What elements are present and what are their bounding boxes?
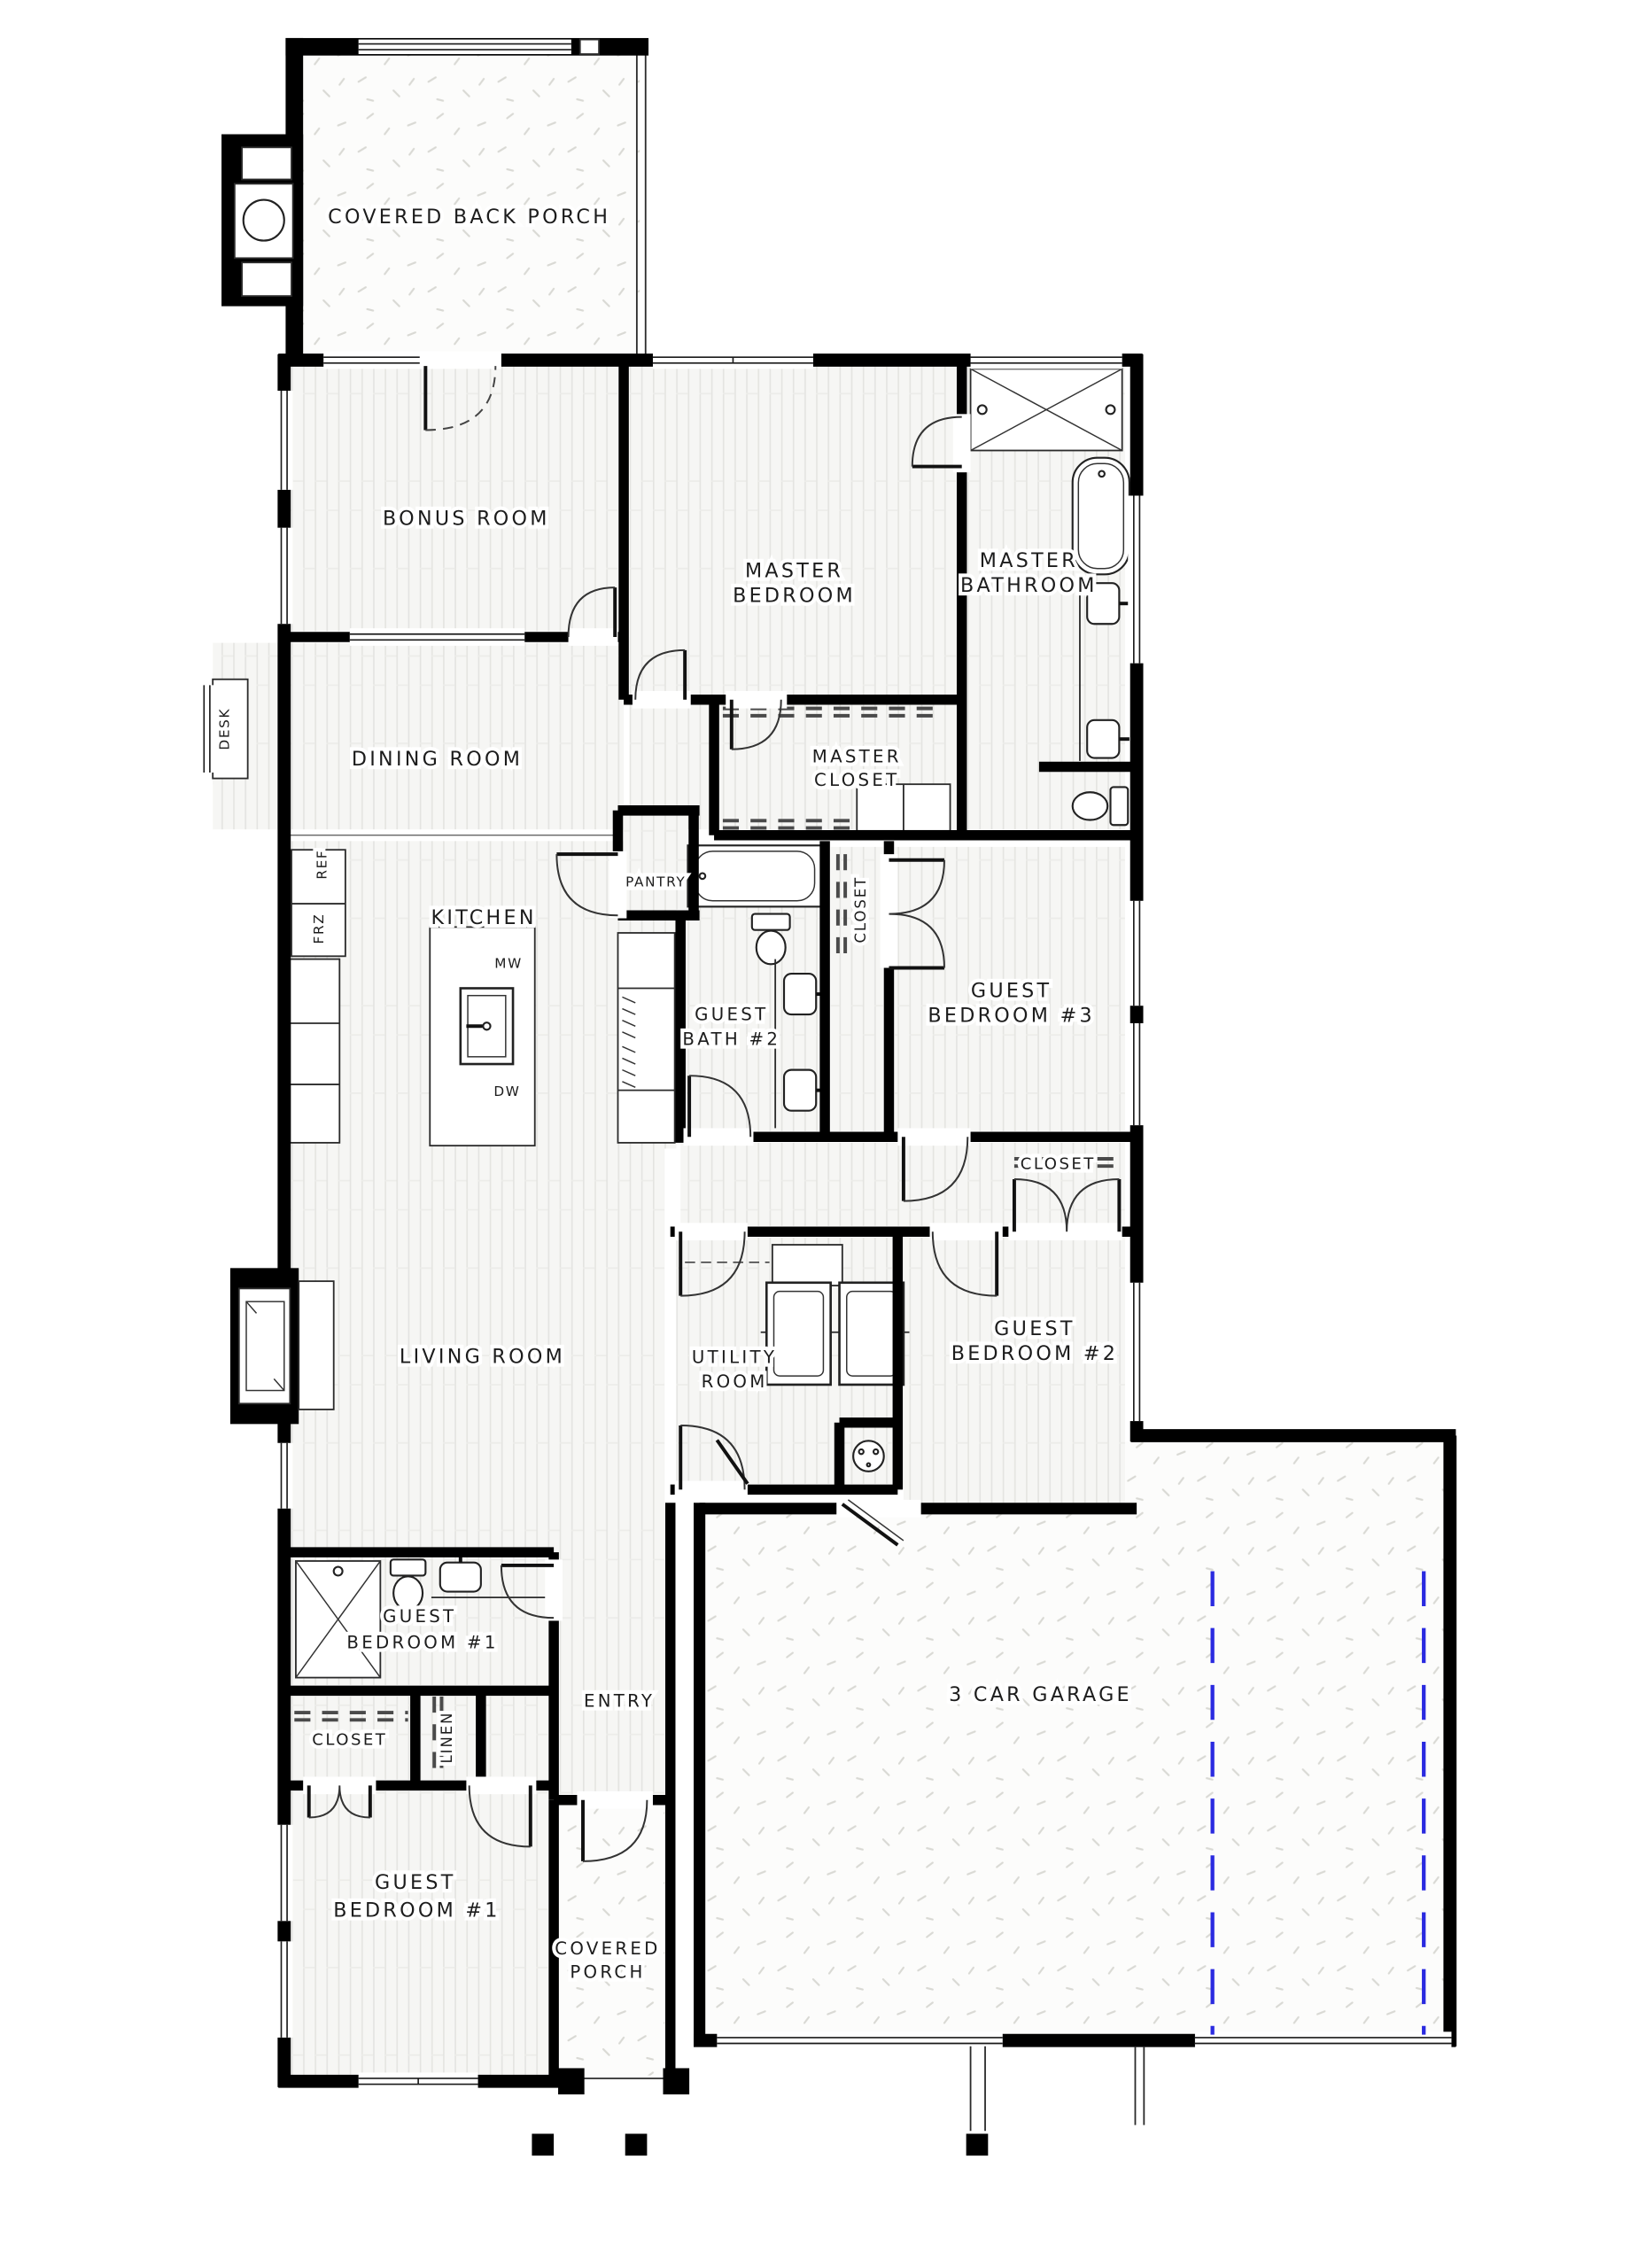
porch-screen-opening bbox=[359, 40, 571, 54]
label-guest-bath2-2: BATH #2 bbox=[682, 1029, 780, 1050]
suite-sink bbox=[440, 1563, 481, 1592]
label-ref: REF bbox=[314, 850, 330, 880]
label-linen: LINEN bbox=[439, 1712, 455, 1764]
label-bed3-closet: CLOSET bbox=[1021, 1154, 1096, 1173]
label-master-bedroom-2: BEDROOM bbox=[733, 585, 856, 608]
label-living-room: LIVING ROOM bbox=[400, 1345, 565, 1368]
window bbox=[1128, 1283, 1145, 1421]
window bbox=[276, 1443, 293, 1509]
guest-tub bbox=[687, 845, 821, 906]
window bbox=[276, 1941, 293, 2038]
label-guest-bedroom1-2: BEDROOM #1 bbox=[333, 1899, 500, 1922]
window bbox=[971, 352, 1122, 369]
master-sink-2 bbox=[1087, 720, 1119, 758]
back-porch-floor bbox=[294, 50, 640, 354]
garage-floor bbox=[705, 1441, 1450, 2035]
label-guest-bedroom1-1: GUEST bbox=[375, 1871, 456, 1894]
porch-fireplace bbox=[221, 135, 303, 307]
kitchen-range-counter bbox=[617, 933, 674, 1143]
label-covered-porch-2: PORCH bbox=[570, 1961, 645, 1982]
label-entry: ENTRY bbox=[584, 1690, 655, 1711]
label-mw: MW bbox=[494, 955, 523, 971]
label-covered-porch-1: COVERED bbox=[555, 1938, 660, 1959]
label-dw: DW bbox=[493, 1084, 520, 1099]
label-front-closet: CLOSET bbox=[312, 1730, 387, 1749]
washer bbox=[766, 1283, 830, 1385]
guest-sink-2 bbox=[784, 1070, 816, 1111]
guest-toilet-icon bbox=[752, 914, 790, 965]
utility-cabinet bbox=[772, 1245, 842, 1285]
label-guest-suite1-1: GUEST bbox=[383, 1606, 456, 1627]
floor-plan-page: COVERED BACK PORCH BONUS ROOM MASTER BED… bbox=[0, 0, 1638, 2268]
window bbox=[276, 528, 293, 625]
label-pantry: PANTRY bbox=[625, 874, 686, 889]
window bbox=[653, 352, 813, 369]
floor-plan-drawing: COVERED BACK PORCH BONUS ROOM MASTER BED… bbox=[0, 0, 1638, 2268]
water-heater-icon bbox=[853, 1441, 884, 1472]
kitchen-left-counter bbox=[290, 959, 339, 1143]
label-guest-bedroom2-1: GUEST bbox=[994, 1317, 1075, 1340]
window bbox=[1128, 901, 1145, 1006]
label-covered-back-porch: COVERED BACK PORCH bbox=[328, 206, 610, 229]
suite-toilet-icon bbox=[391, 1559, 425, 1610]
label-master-bathroom-1: MASTER bbox=[980, 549, 1078, 572]
label-master-bedroom-1: MASTER bbox=[745, 560, 843, 583]
label-guest-suite1-2: BEDROOM #1 bbox=[346, 1633, 498, 1653]
window bbox=[276, 1825, 293, 1922]
label-master-closet-1: MASTER bbox=[812, 747, 902, 767]
window bbox=[198, 685, 216, 773]
window bbox=[1128, 1023, 1145, 1125]
label-bonus-room: BONUS ROOM bbox=[383, 507, 550, 530]
opening-bonus-dining bbox=[350, 628, 524, 646]
label-garage: 3 CAR GARAGE bbox=[949, 1683, 1132, 1706]
window bbox=[359, 2072, 478, 2090]
hearth bbox=[299, 1281, 333, 1410]
window bbox=[276, 391, 293, 490]
porch-vent-marker bbox=[580, 40, 599, 54]
label-kitchen: KITCHEN bbox=[431, 906, 537, 929]
label-master-closet-2: CLOSET bbox=[814, 770, 899, 790]
label-master-bathroom-2: BATHROOM bbox=[960, 574, 1098, 597]
label-guest-bedroom2-2: BEDROOM #2 bbox=[951, 1342, 1118, 1365]
label-hall-closet: CLOSET bbox=[852, 876, 869, 944]
label-utility-2: ROOM bbox=[702, 1371, 768, 1392]
label-guest-bedroom3-2: BEDROOM #3 bbox=[928, 1004, 1094, 1027]
master-tub bbox=[1073, 458, 1130, 575]
label-dining-room: DINING ROOM bbox=[352, 748, 523, 771]
label-frz: FRZ bbox=[311, 913, 327, 944]
label-desk: DESK bbox=[216, 708, 232, 750]
label-guest-bath2-1: GUEST bbox=[695, 1005, 768, 1025]
label-guest-bedroom3-1: GUEST bbox=[971, 979, 1052, 1002]
guest-sink-1 bbox=[784, 974, 816, 1014]
label-utility-1: UTILITY bbox=[692, 1347, 777, 1367]
window bbox=[1128, 495, 1145, 663]
living-fireplace bbox=[230, 1268, 334, 1424]
